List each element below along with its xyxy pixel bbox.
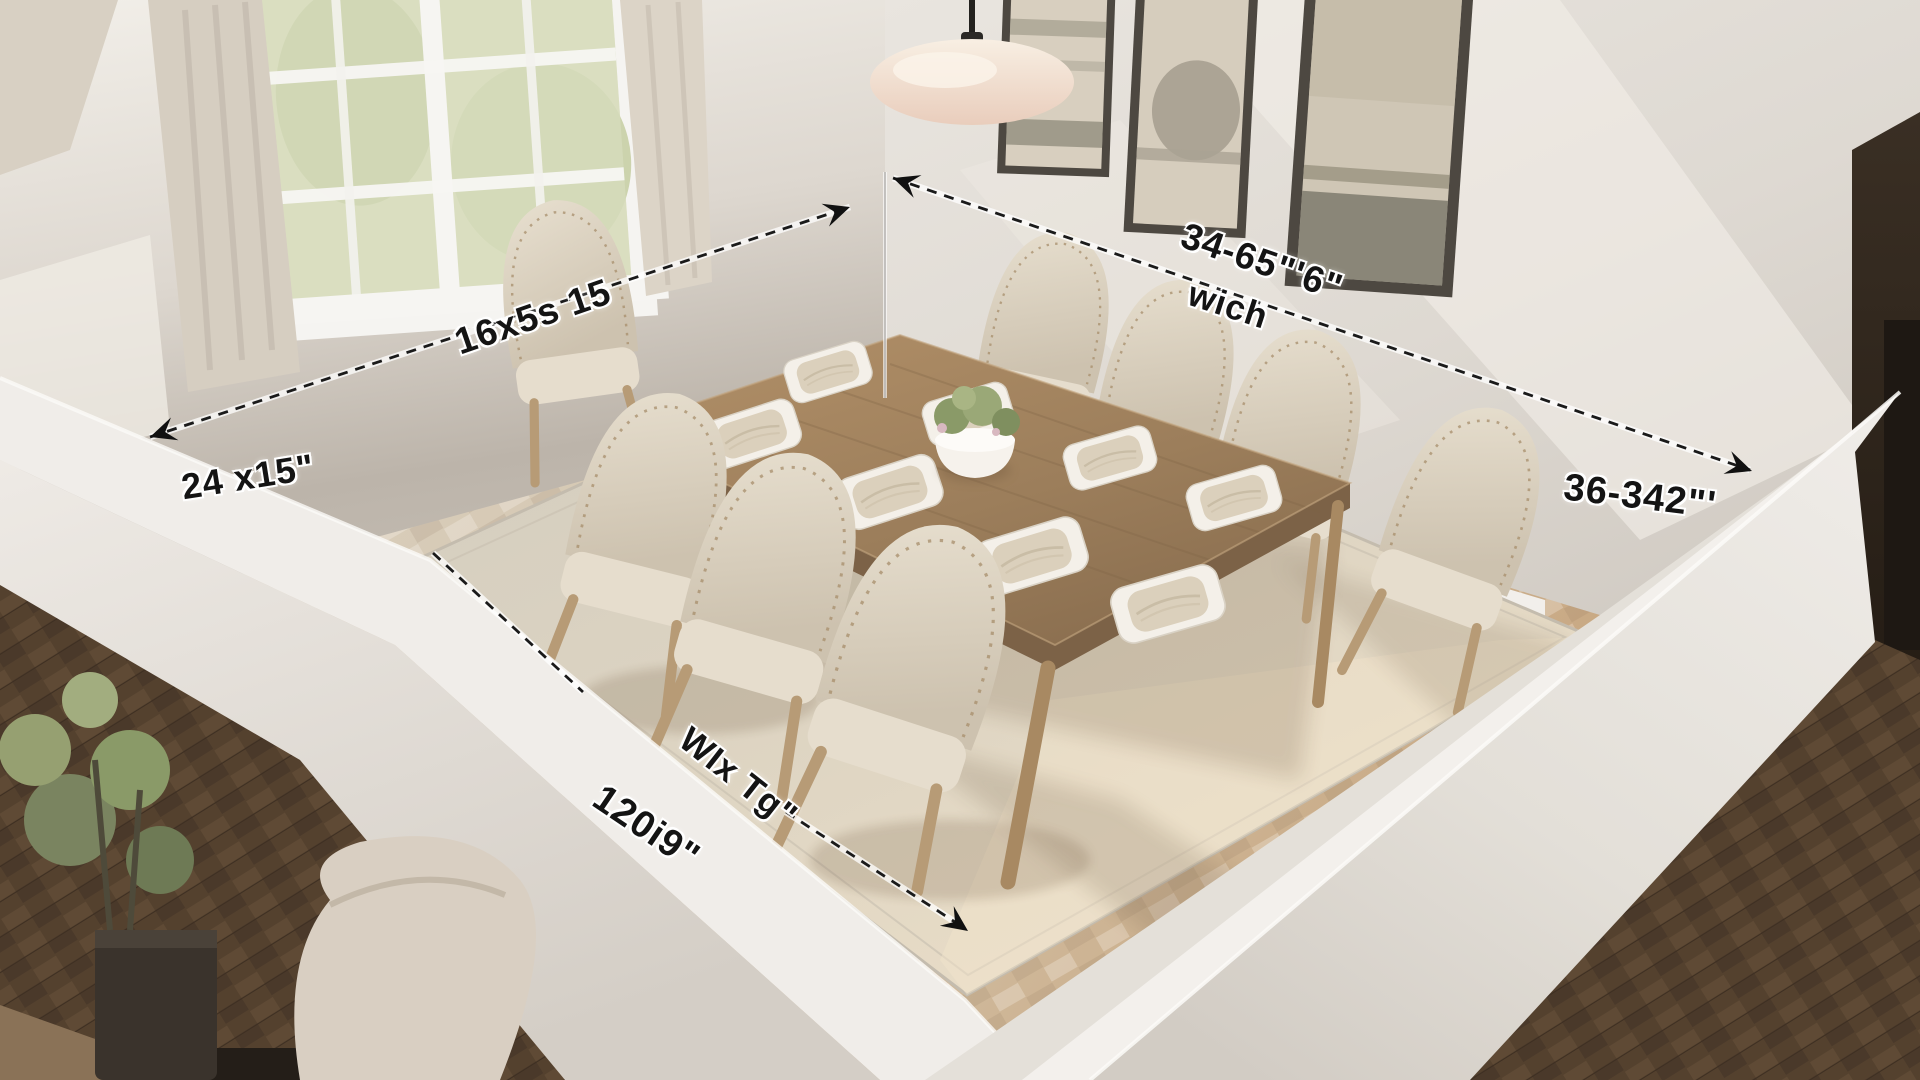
scene-illustration <box>0 0 1920 1080</box>
dining-room-render: 16x5s 15 24 x15" 34-65"'6" wich 36-342"'… <box>0 0 1920 1080</box>
lounge-chair <box>294 836 536 1080</box>
